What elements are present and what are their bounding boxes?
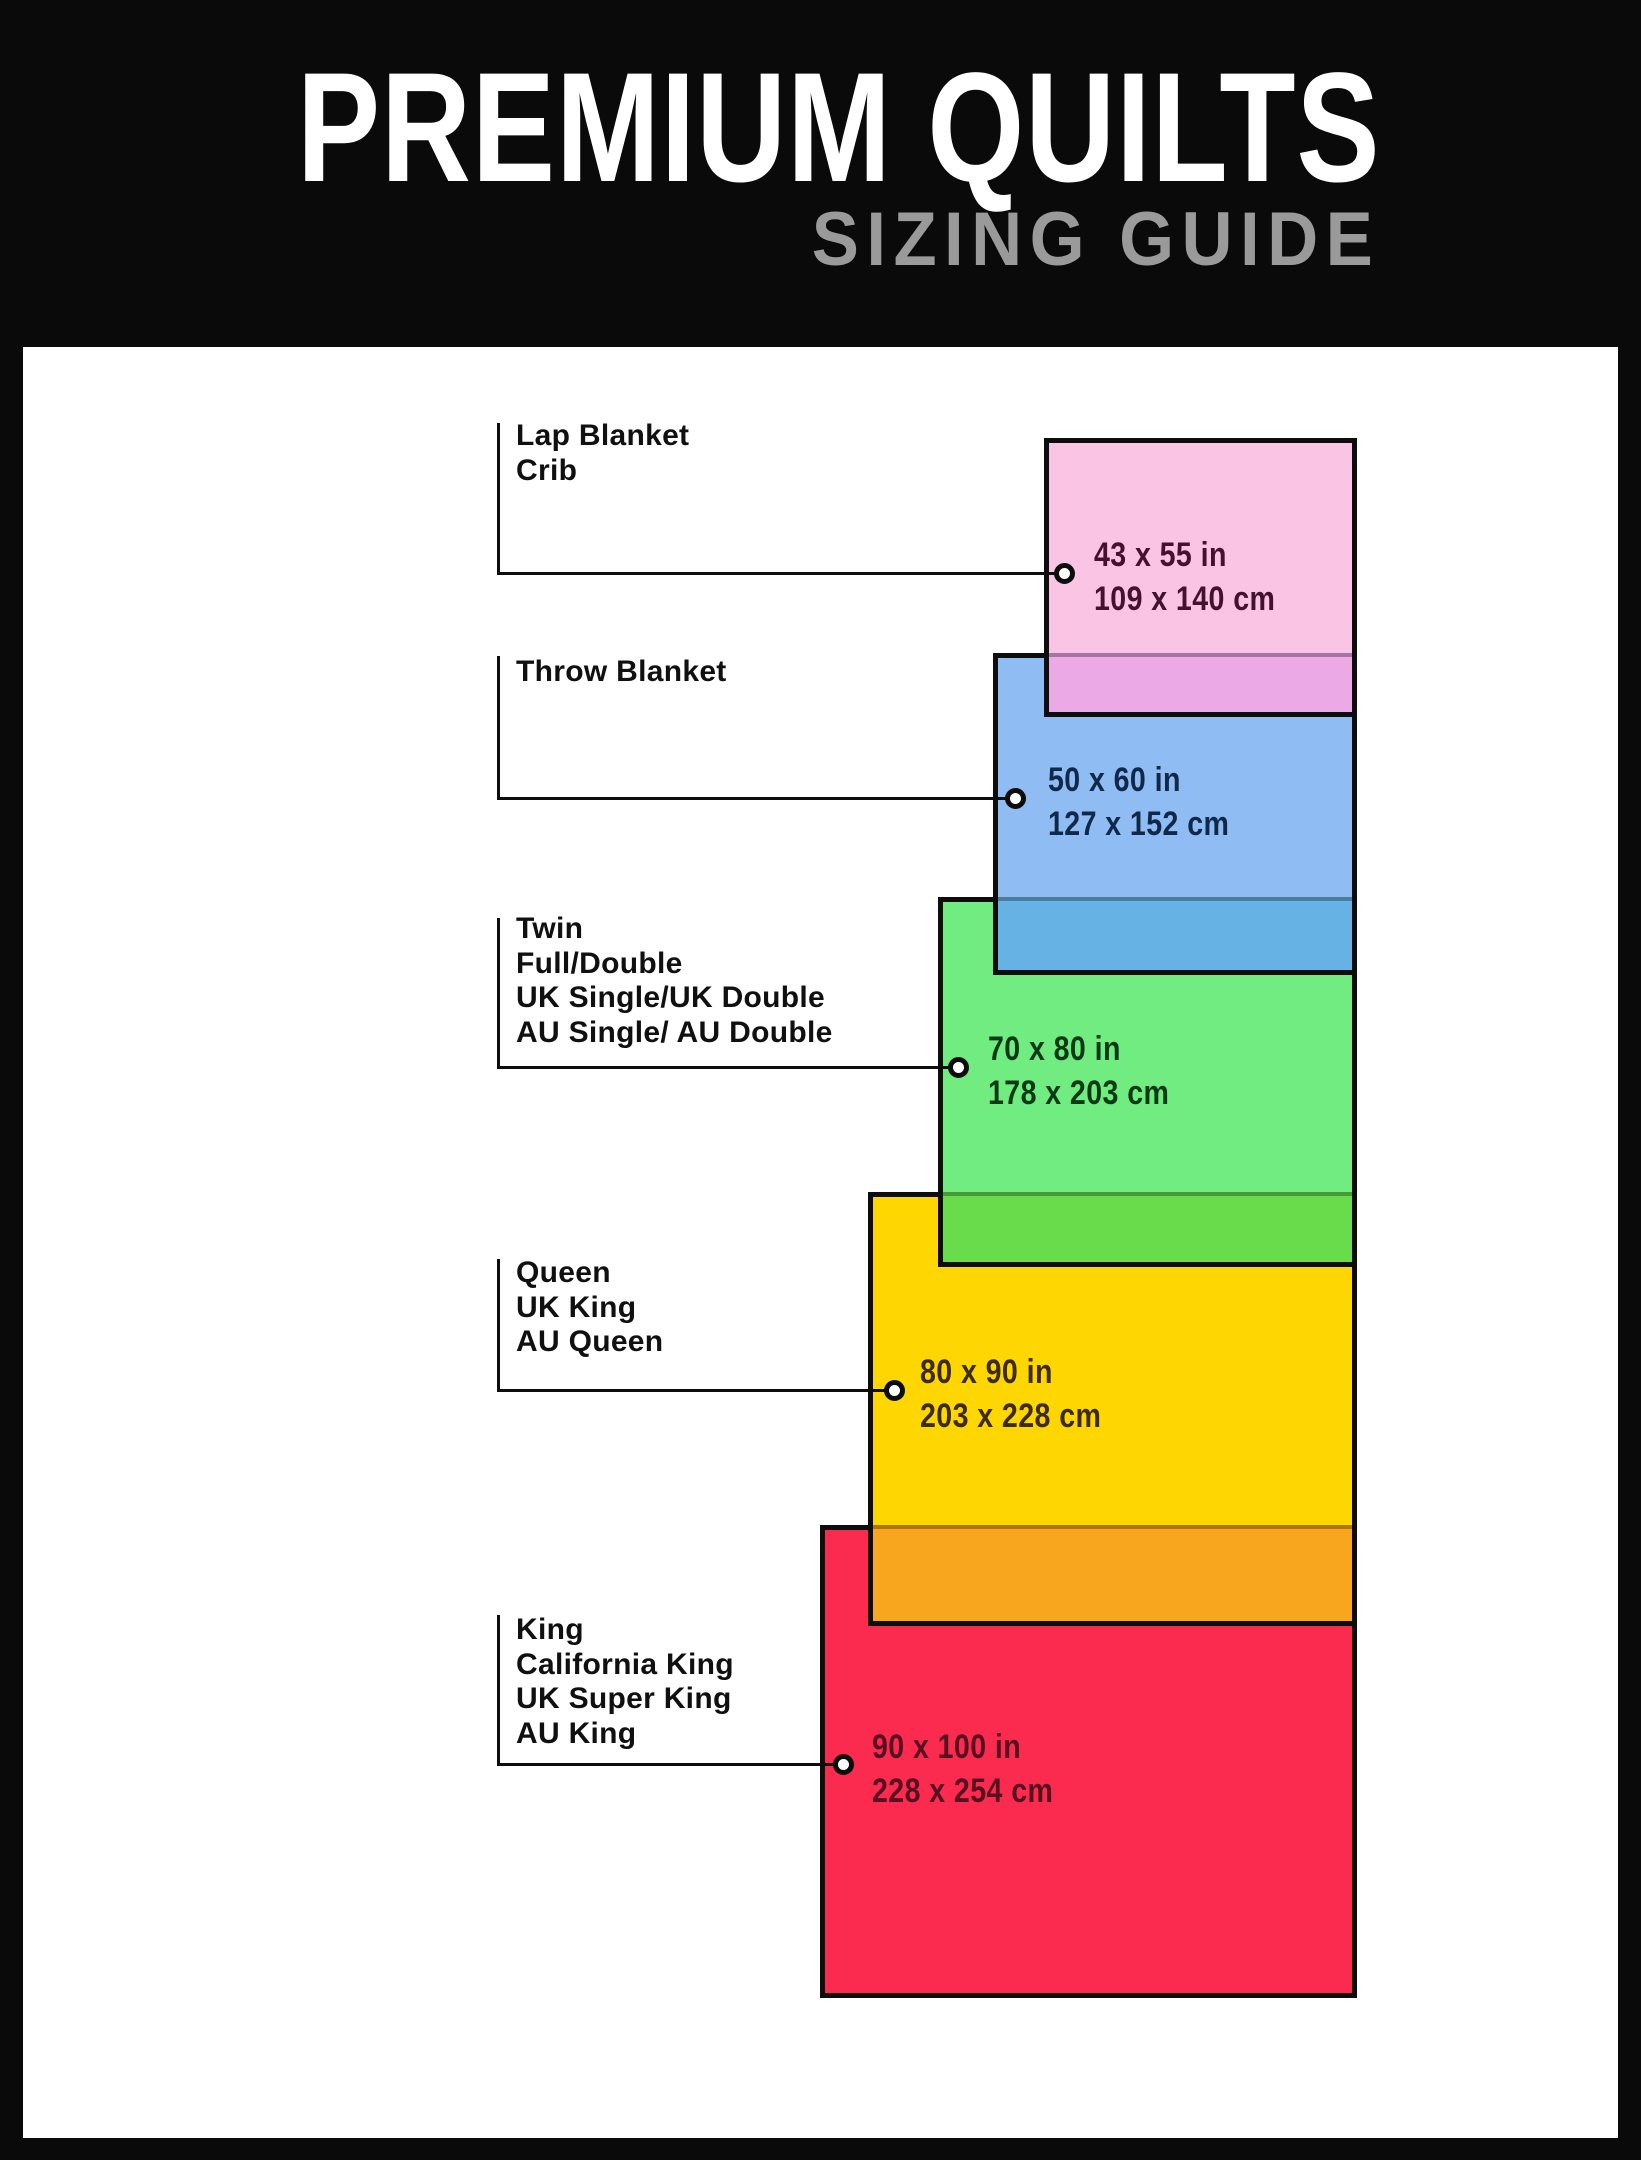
overlap-band-lap-blanket-crib <box>1049 653 1352 712</box>
connector-vline-lap-blanket-crib <box>497 423 500 575</box>
overlap-band-throw-blanket <box>998 897 1352 970</box>
dimension-cm: 178 x 203 cm <box>988 1071 1169 1115</box>
connector-dot-throw-blanket <box>1005 788 1026 809</box>
page-subtitle: SIZING GUIDE <box>812 200 1380 280</box>
connector-hline-queen-uk-king <box>497 1389 888 1392</box>
size-label-line: Crib <box>516 454 689 489</box>
dimension-text-throw-blanket: 50 x 60 in127 x 152 cm <box>1048 758 1229 846</box>
size-label-line: California King <box>516 1648 734 1683</box>
size-label-line: Throw Blanket <box>516 655 727 690</box>
size-label-throw-blanket: Throw Blanket <box>516 655 727 690</box>
connector-vline-throw-blanket <box>497 656 500 800</box>
dimension-inches: 70 x 80 in <box>988 1027 1169 1071</box>
connector-vline-king-cal-king <box>497 1615 500 1766</box>
infographic-page: PREMIUM QUILTS SIZING GUIDE 43 x 55 in10… <box>0 0 1641 2160</box>
connector-dot-king-cal-king <box>833 1754 854 1775</box>
connector-dot-lap-blanket-crib <box>1054 563 1075 584</box>
size-label-king-cal-king: KingCalifornia KingUK Super KingAU King <box>516 1613 734 1751</box>
dimension-cm: 127 x 152 cm <box>1048 802 1229 846</box>
dimension-cm: 228 x 254 cm <box>872 1769 1053 1813</box>
dimension-inches: 50 x 60 in <box>1048 758 1229 802</box>
size-label-line: AU Queen <box>516 1325 663 1360</box>
page-title: PREMIUM QUILTS <box>296 50 1380 206</box>
size-label-line: UK Single/UK Double <box>516 981 833 1016</box>
size-label-line: AU King <box>516 1717 734 1752</box>
overlap-band-queen-uk-king <box>873 1525 1352 1621</box>
size-label-line: Lap Blanket <box>516 419 689 454</box>
size-label-line: AU Single/ AU Double <box>516 1016 833 1051</box>
size-label-line: Full/Double <box>516 947 833 982</box>
size-label-line: UK Super King <box>516 1682 734 1717</box>
connector-hline-throw-blanket <box>497 797 1009 800</box>
size-label-lap-blanket-crib: Lap BlanketCrib <box>516 419 689 488</box>
dimension-text-queen-uk-king: 80 x 90 in203 x 228 cm <box>920 1350 1101 1438</box>
connector-dot-twin-full-double <box>948 1057 969 1078</box>
connector-hline-king-cal-king <box>497 1763 837 1766</box>
size-label-queen-uk-king: QueenUK KingAU Queen <box>516 1256 663 1360</box>
dimension-cm: 203 x 228 cm <box>920 1394 1101 1438</box>
size-label-line: Twin <box>516 912 833 947</box>
connector-dot-queen-uk-king <box>884 1380 905 1401</box>
size-label-line: King <box>516 1613 734 1648</box>
connector-vline-queen-uk-king <box>497 1259 500 1392</box>
size-label-twin-full-double: TwinFull/DoubleUK Single/UK DoubleAU Sin… <box>516 912 833 1050</box>
size-label-line: Queen <box>516 1256 663 1291</box>
size-label-line: UK King <box>516 1291 663 1326</box>
connector-hline-lap-blanket-crib <box>497 572 1058 575</box>
dimension-cm: 109 x 140 cm <box>1094 577 1275 621</box>
dimension-inches: 90 x 100 in <box>872 1725 1053 1769</box>
dimension-text-king-cal-king: 90 x 100 in228 x 254 cm <box>872 1725 1053 1813</box>
overlap-band-twin-full-double <box>943 1192 1352 1262</box>
connector-vline-twin-full-double <box>497 918 500 1069</box>
dimension-inches: 43 x 55 in <box>1094 533 1275 577</box>
dimension-text-twin-full-double: 70 x 80 in178 x 203 cm <box>988 1027 1169 1115</box>
dimension-text-lap-blanket-crib: 43 x 55 in109 x 140 cm <box>1094 533 1275 621</box>
dimension-inches: 80 x 90 in <box>920 1350 1101 1394</box>
connector-hline-twin-full-double <box>497 1066 952 1069</box>
